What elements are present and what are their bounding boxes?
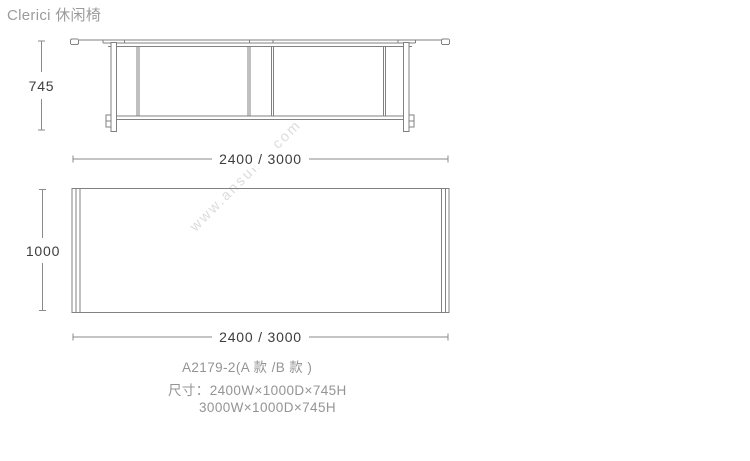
technical-drawing [0, 0, 750, 461]
product-size-line-1: 尺寸：2400W×1000D×745H [168, 379, 347, 399]
front-elevation-drawing [71, 39, 450, 132]
plan-depth-dimension-label: 1000 [22, 242, 64, 260]
front-height-dimension-label: 745 [25, 77, 59, 95]
drawing-sheet: Clerici 休闲椅 www.ansuner.com [0, 0, 750, 461]
plan-width-dimension-label: 2400 / 3000 [215, 328, 306, 346]
dimension-lines [38, 41, 448, 341]
product-model-text: A2179-2(A 款 /B 款 ) [182, 356, 312, 376]
plan-view-drawing [72, 189, 449, 313]
front-width-dimension-label: 2400 / 3000 [215, 150, 306, 168]
product-size-line-2: 3000W×1000D×745H [199, 400, 336, 415]
